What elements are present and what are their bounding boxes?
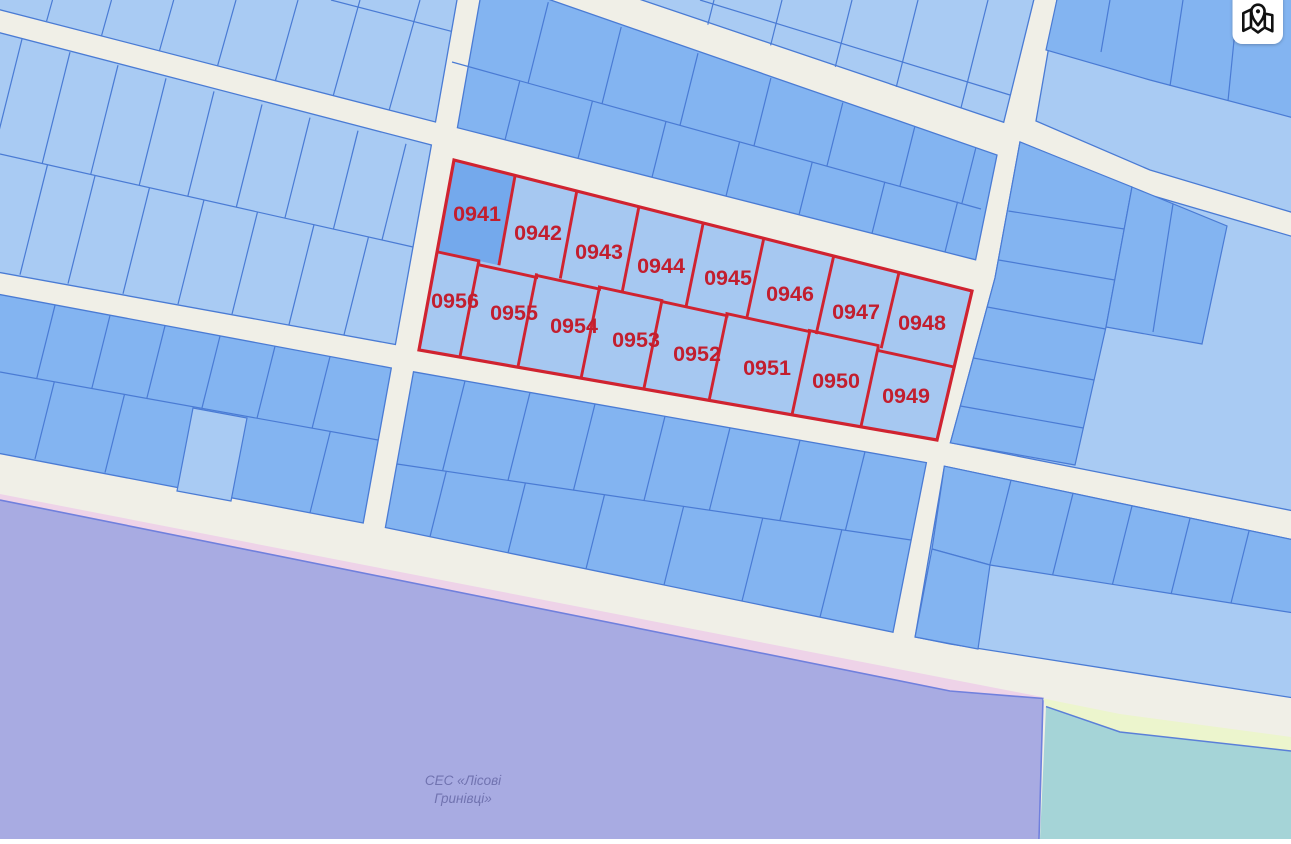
svg-text:0949: 0949 [882,384,930,408]
svg-text:0941: 0941 [453,202,501,226]
svg-text:0950: 0950 [812,369,860,393]
svg-text:0954: 0954 [550,314,598,338]
svg-text:0952: 0952 [673,342,721,366]
svg-text:0946: 0946 [766,282,814,306]
svg-text:Гринівці»: Гринівці» [434,791,491,806]
svg-text:0956: 0956 [431,289,479,313]
svg-text:0951: 0951 [743,356,791,380]
svg-text:0955: 0955 [490,301,538,325]
svg-text:0944: 0944 [637,254,685,278]
svg-text:0953: 0953 [612,328,660,352]
svg-text:СЕС «Лісові: СЕС «Лісові [425,773,502,788]
svg-text:0942: 0942 [514,221,562,245]
svg-text:0943: 0943 [575,240,623,264]
svg-text:0948: 0948 [898,311,946,335]
svg-text:0947: 0947 [832,300,880,324]
svg-text:0945: 0945 [704,266,752,290]
